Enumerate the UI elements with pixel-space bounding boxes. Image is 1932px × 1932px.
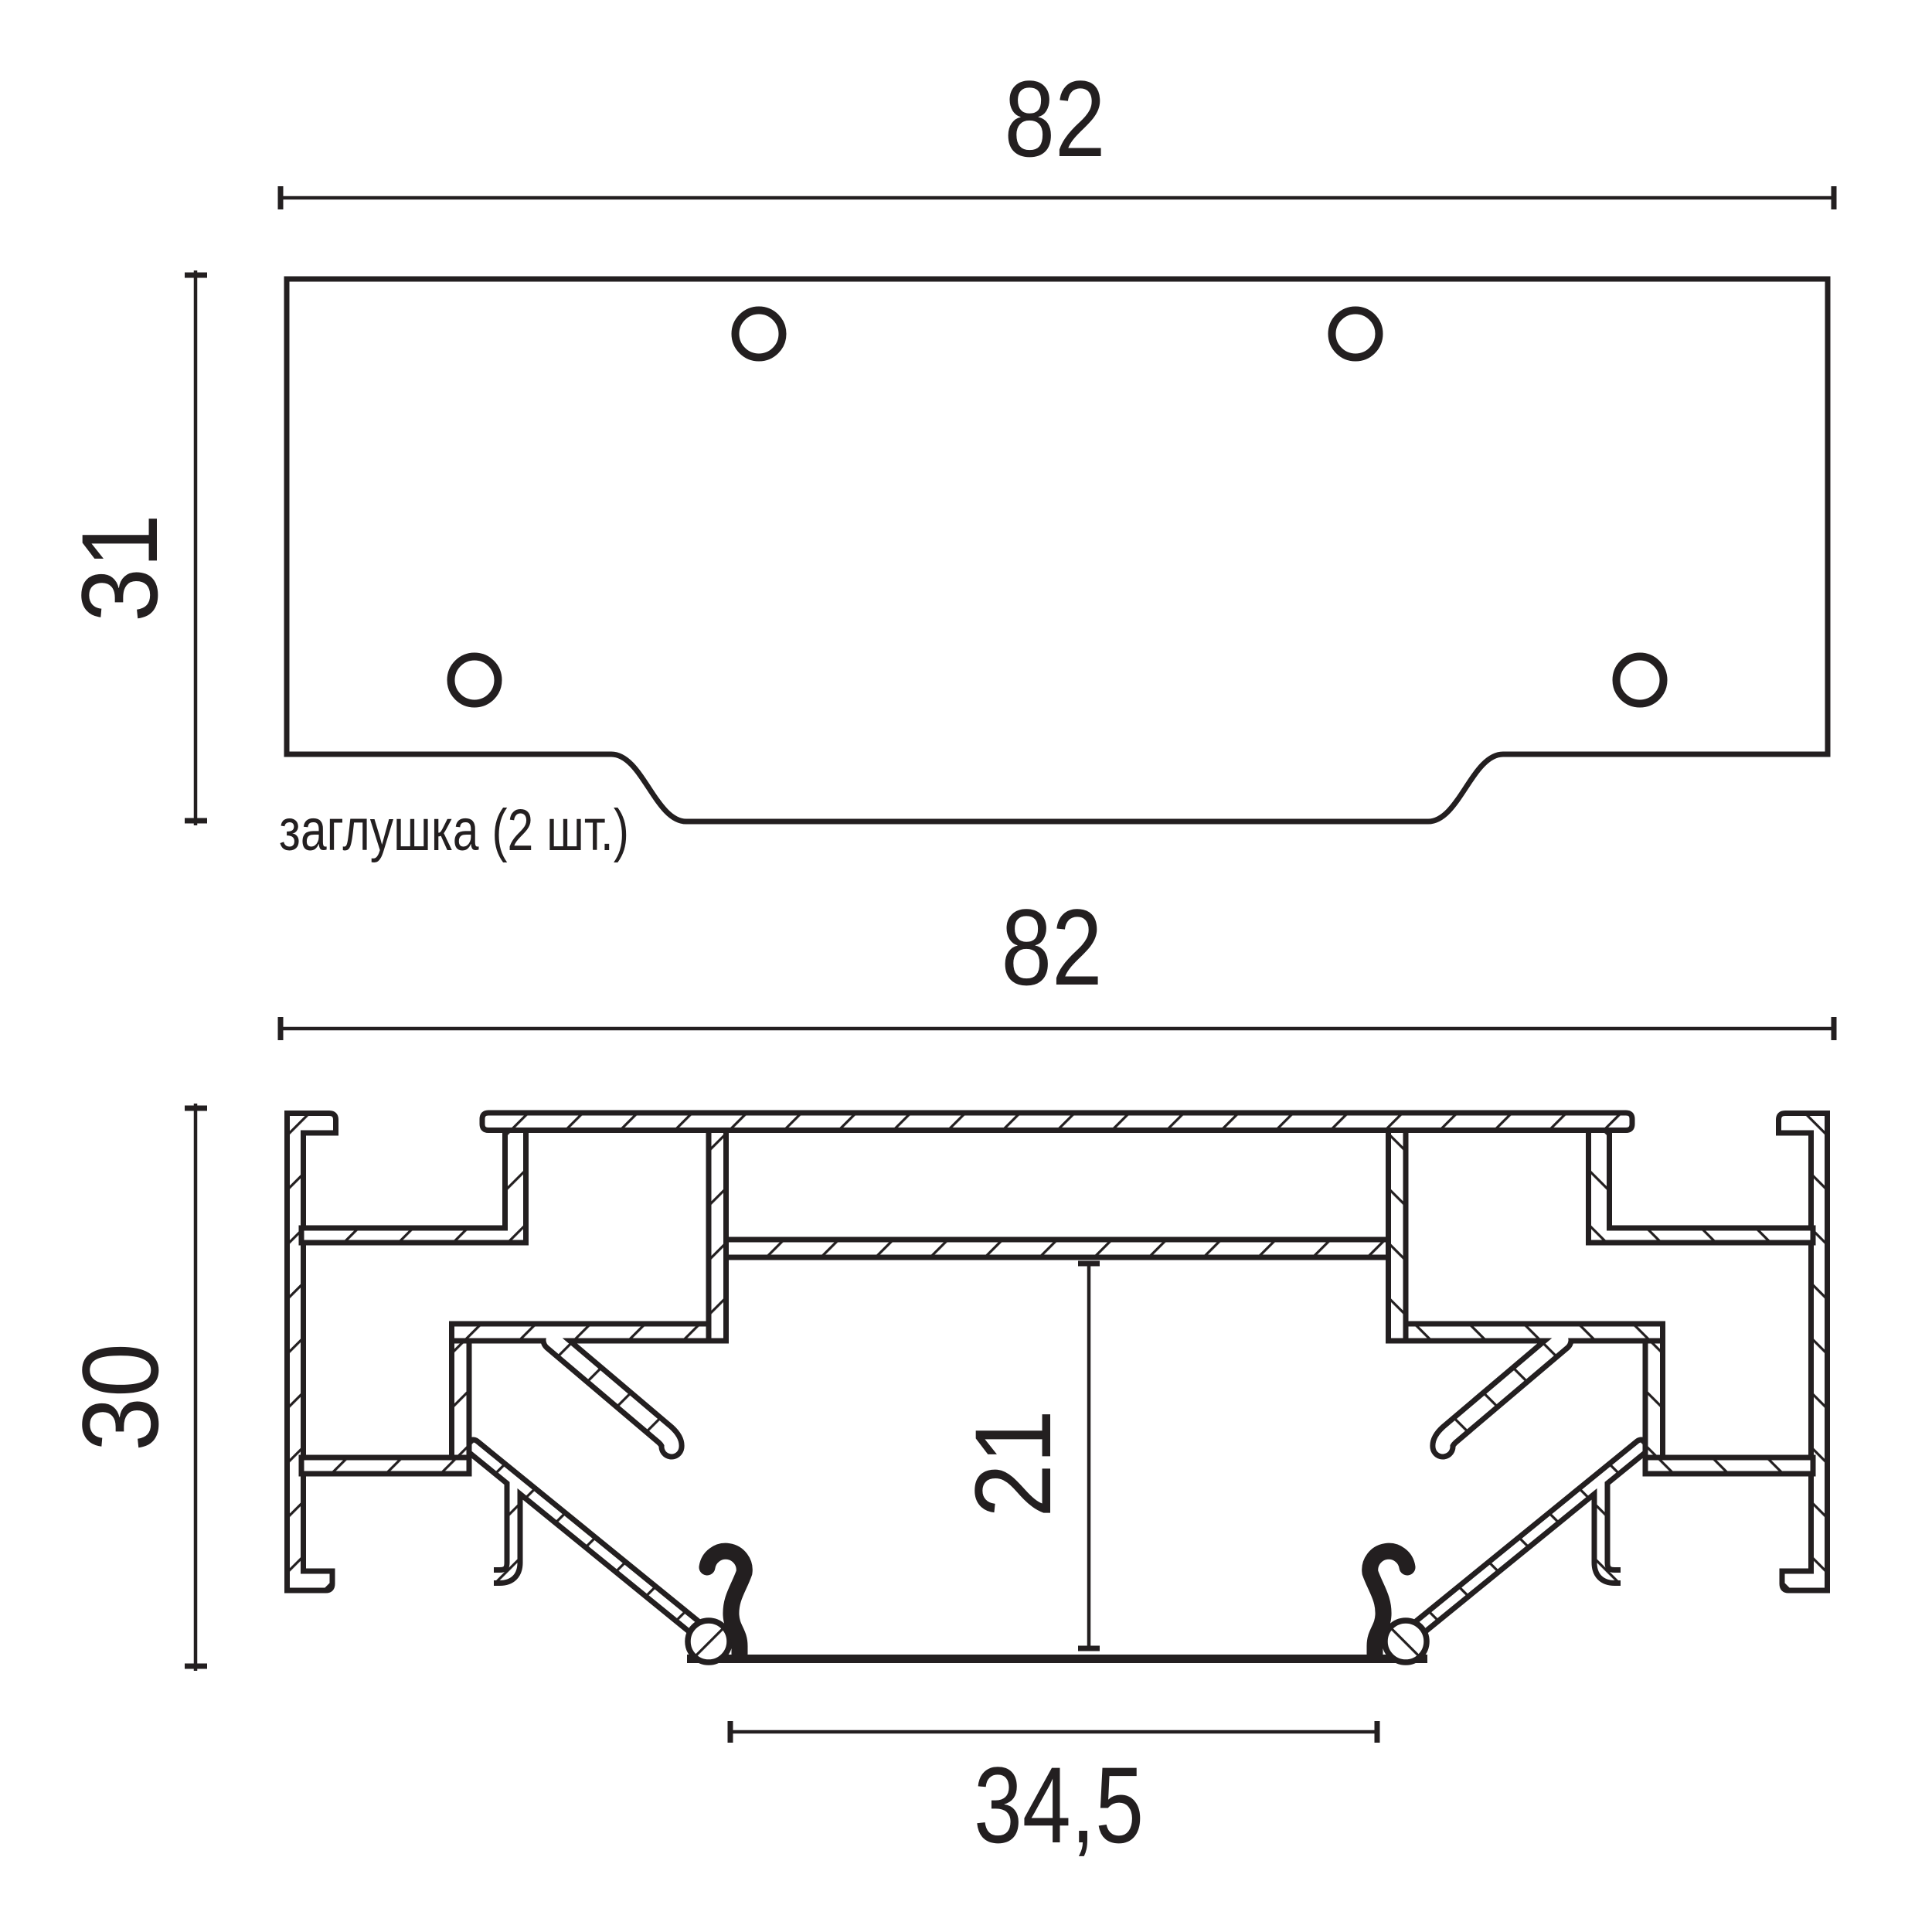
svg-text:82: 82 [1005, 58, 1106, 179]
svg-text:заглушка (2 шт.): заглушка (2 шт.) [279, 798, 629, 863]
svg-text:31: 31 [59, 514, 180, 622]
svg-text:82: 82 [1002, 886, 1103, 1008]
svg-text:34,5: 34,5 [974, 1744, 1144, 1866]
svg-text:30: 30 [60, 1343, 181, 1451]
svg-text:21: 21 [952, 1410, 1073, 1518]
